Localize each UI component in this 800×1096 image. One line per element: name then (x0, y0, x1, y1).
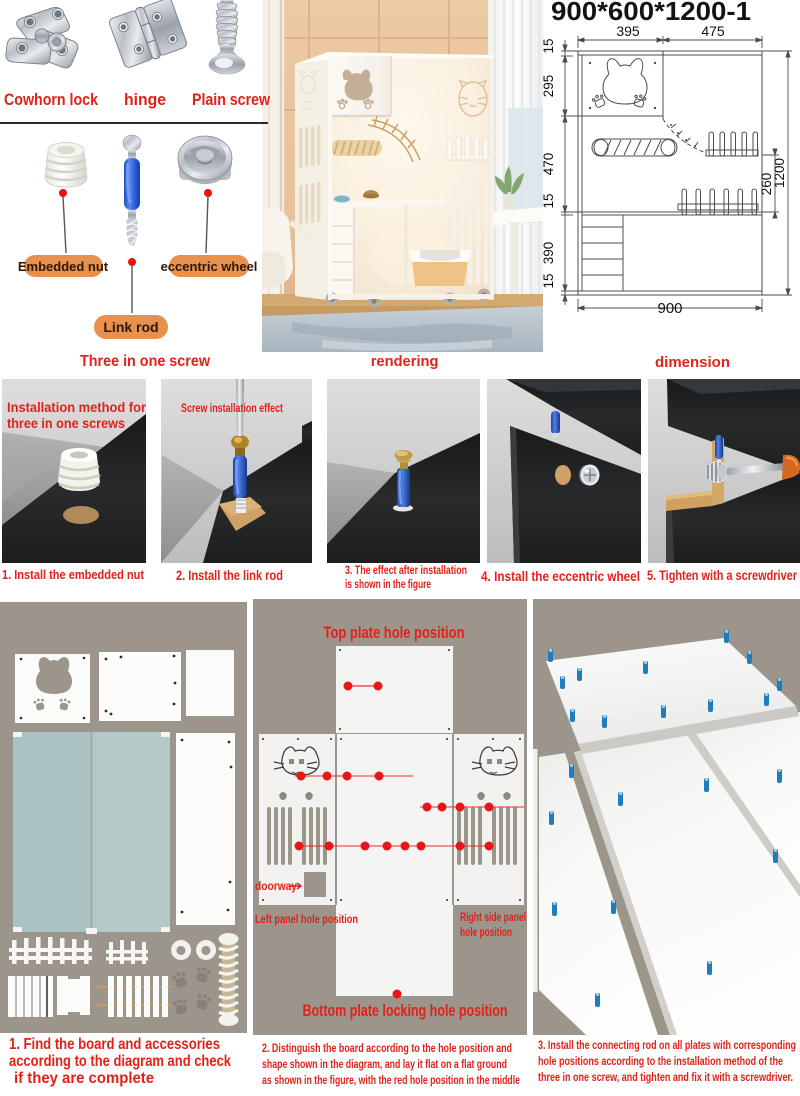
svg-text:4. Install the eccentric wheel: 4. Install the eccentric wheel (481, 568, 640, 584)
svg-text:1200: 1200 (772, 158, 787, 188)
svg-text:as shown in the figure, with t: as shown in the figure, with the red hol… (262, 1073, 520, 1087)
svg-text:900: 900 (657, 300, 682, 317)
svg-text:Plain screw: Plain screw (192, 90, 270, 109)
svg-text:shape shown in the diagram, an: shape shown in the diagram, and lay it f… (262, 1057, 507, 1071)
svg-text:Screw installation effect: Screw installation effect (181, 403, 283, 415)
svg-text:if they are complete: if they are complete (14, 1070, 154, 1087)
svg-text:Link rod: Link rod (103, 319, 158, 335)
svg-text:eccentric wheel: eccentric wheel (161, 259, 258, 274)
svg-text:5. Tighten with a screwdriver: 5. Tighten with a screwdriver (647, 568, 798, 583)
svg-text:Embedded nut: Embedded nut (18, 259, 109, 274)
svg-text:15: 15 (543, 38, 556, 53)
svg-text:2. Install the link rod: 2. Install the link rod (176, 568, 283, 583)
svg-text:295: 295 (543, 75, 556, 98)
svg-text:three in one screw, and tighte: three in one screw, and tighten and fix … (538, 1070, 793, 1084)
svg-text:15: 15 (543, 273, 556, 288)
svg-text:390: 390 (543, 242, 556, 265)
svg-text:470: 470 (543, 153, 556, 176)
svg-text:Cowhorn lock: Cowhorn lock (4, 90, 98, 109)
svg-text:2. Distinguish the board accor: 2. Distinguish the board according to th… (262, 1041, 512, 1055)
svg-text:according to the diagram and c: according to the diagram and check (9, 1053, 231, 1070)
svg-text:Left panel hole position: Left panel hole position (255, 914, 358, 926)
svg-text:three in one screws: three in one screws (7, 416, 125, 431)
svg-text:Installation method for: Installation method for (7, 400, 147, 415)
svg-text:Right side panel: Right side panel (460, 910, 526, 924)
svg-text:Bottom plate locking hole posi: Bottom plate locking hole position (303, 1001, 508, 1020)
svg-text:3. Install the connecting rod: 3. Install the connecting rod on all pla… (538, 1038, 796, 1052)
svg-text:Top plate hole position: Top plate hole position (324, 624, 465, 642)
svg-text:doorway: doorway (255, 881, 298, 893)
svg-text:15: 15 (543, 193, 556, 208)
svg-text:is shown in the figure: is shown in the figure (345, 579, 431, 591)
svg-text:1. Find the board and accessor: 1. Find the board and accessories (9, 1036, 220, 1053)
svg-text:395: 395 (616, 23, 640, 39)
svg-text:hole positions according to th: hole positions according to the installa… (538, 1054, 783, 1068)
svg-text:hole position: hole position (460, 925, 512, 939)
svg-text:475: 475 (701, 23, 725, 39)
svg-text:1. Install the embedded nut: 1. Install the embedded nut (2, 567, 145, 582)
svg-text:Three in one screw: Three in one screw (80, 353, 210, 370)
svg-text:hinge: hinge (124, 90, 166, 109)
svg-text:3. The effect after installati: 3. The effect after installation (345, 565, 467, 577)
